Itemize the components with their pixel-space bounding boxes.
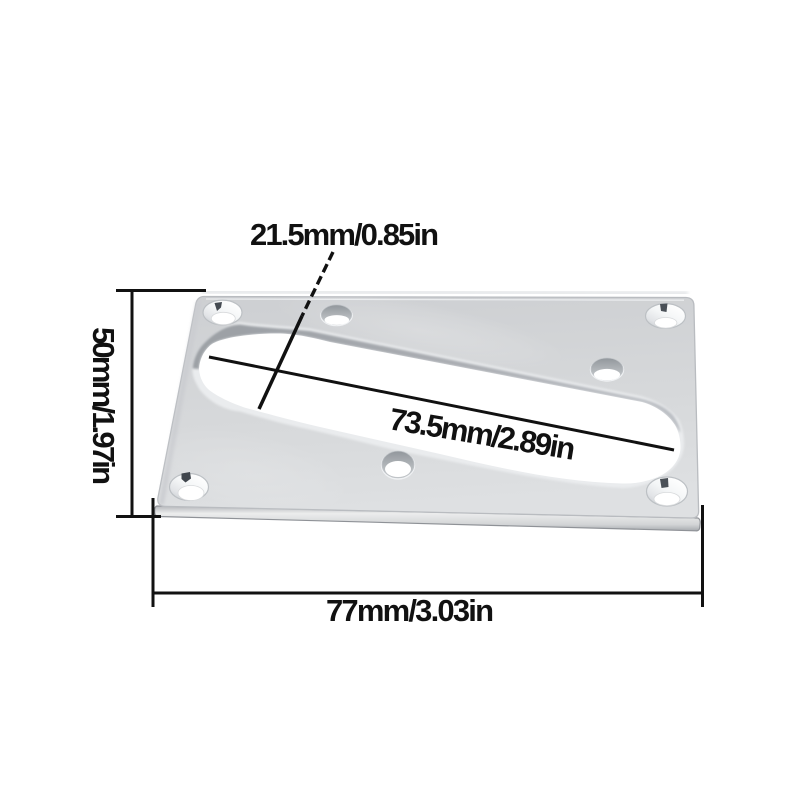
svg-text:21.5mm/0.85in: 21.5mm/0.85in	[250, 217, 439, 252]
svg-text:77mm/3.03in: 77mm/3.03in	[326, 593, 494, 628]
svg-text:50mm/1.97in: 50mm/1.97in	[86, 327, 121, 485]
